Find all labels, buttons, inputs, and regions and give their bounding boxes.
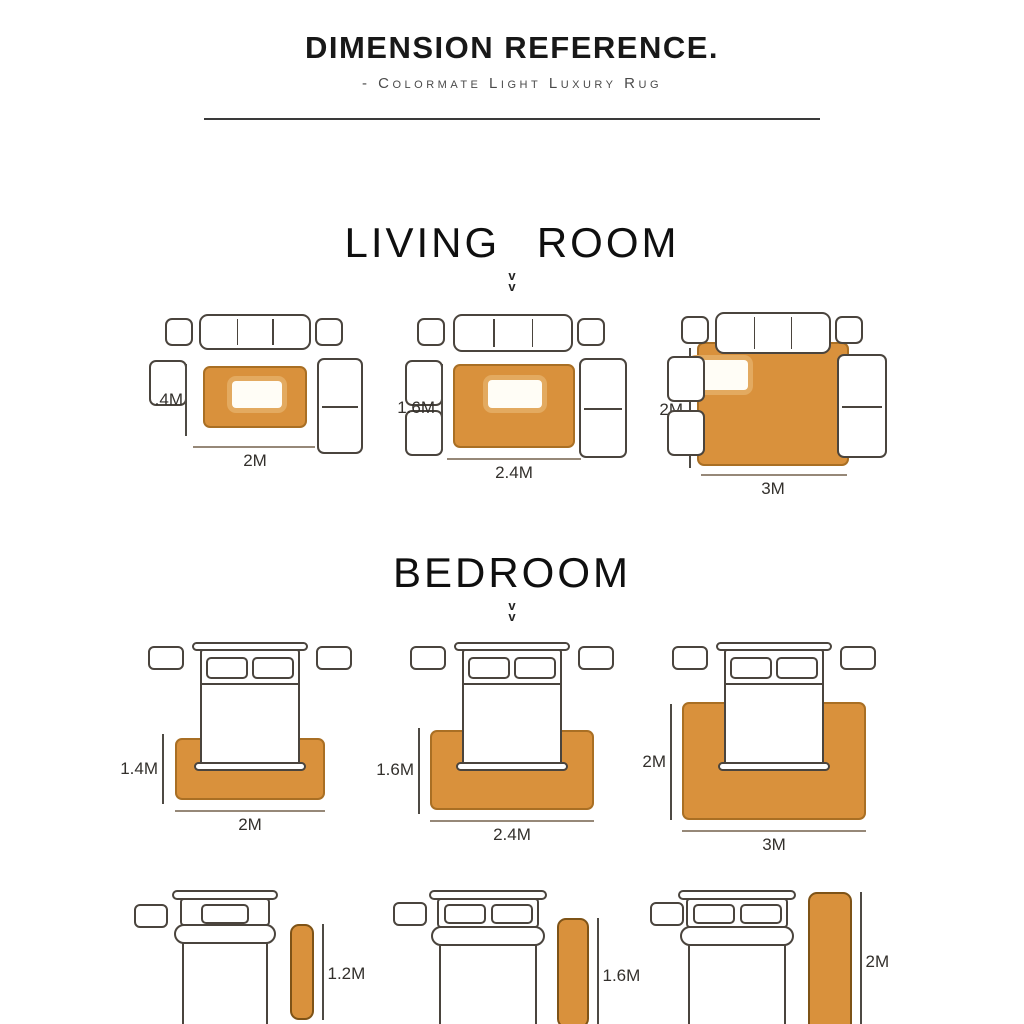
living-diagram-2m: .4M 2M: [129, 308, 379, 500]
side-table-icon: [315, 318, 343, 346]
height-dimension-line: [162, 734, 164, 804]
sofa-seat-divider: [237, 319, 239, 345]
header: DIMENSION REFERENCE. - Colormate Light L…: [0, 0, 1024, 120]
living-diagram-3m: 2M 3M: [645, 308, 895, 500]
pillow-icon: [776, 657, 818, 679]
width-dimension-label: 3M: [697, 479, 849, 499]
bed-icon: [182, 942, 268, 1024]
living-room-diagrams: .4M 2M 1.6M 2.4M: [0, 308, 1024, 500]
sofa-icon: [715, 312, 831, 354]
runner-rug-icon: [290, 924, 314, 1020]
loveseat-icon: [317, 358, 363, 454]
chevron-down-icon: v: [0, 283, 1024, 294]
armchair-icon: [667, 410, 705, 456]
side-table-icon: [417, 318, 445, 346]
height-dimension-line: [418, 728, 420, 814]
coffee-table-icon: [488, 380, 542, 408]
blanket-edge: [463, 683, 561, 685]
height-dimension-line: [860, 892, 862, 1024]
bed-head-icon: [437, 898, 539, 928]
pillow-icon: [444, 904, 486, 924]
width-dimension-label: 2M: [203, 451, 307, 471]
pillow-icon: [252, 657, 294, 679]
bolster-icon: [680, 926, 794, 946]
side-table-icon: [835, 316, 863, 344]
bed-foot-icon: [718, 762, 830, 771]
nightstand-icon: [134, 904, 168, 928]
sofa-seat-divider: [754, 317, 756, 349]
nightstand-icon: [672, 646, 708, 670]
bed-foot-icon: [194, 762, 306, 771]
sofa-seat-divider: [493, 319, 495, 347]
blanket-edge: [725, 683, 823, 685]
nightstand-icon: [316, 646, 352, 670]
living-diagram-2-4m: 1.6M 2.4M: [387, 308, 637, 500]
header-divider: [204, 118, 820, 120]
bed-icon: [462, 649, 562, 767]
bed-icon: [439, 944, 537, 1024]
bedroom-diagram-2m: 1.4M 2M: [130, 642, 370, 860]
side-table-icon: [681, 316, 709, 344]
page-subtitle: - Colormate Light Luxury Rug: [0, 75, 1024, 92]
bedroom-diagrams: 1.4M 2M 1.6M 2.4M: [0, 642, 1024, 860]
runner-diagram-0-6m: 1.6M 0.6M: [385, 888, 640, 1024]
sofa-icon: [453, 314, 573, 352]
width-dimension-label: 2.4M: [430, 825, 594, 845]
pillow-icon: [206, 657, 248, 679]
sofa-seat-divider: [791, 317, 793, 349]
bolster-icon: [431, 926, 545, 946]
living-room-heading: LIVING ROOM: [0, 222, 1024, 264]
bolster-icon: [174, 924, 276, 944]
loveseat-icon: [837, 354, 887, 458]
runner-diagram-0-4m: 1.2M 0.4M: [122, 888, 377, 1024]
bedroom-heading: BEDROOM: [0, 552, 1024, 594]
runner-rug-icon: [557, 918, 589, 1024]
height-dimension-label: .4M: [137, 390, 183, 410]
loveseat-seat-divider: [584, 408, 622, 410]
width-dimension-label: 2M: [175, 815, 325, 835]
nightstand-icon: [650, 902, 684, 926]
bedroom-diagram-3m: 2M 3M: [654, 642, 894, 860]
rug-icon: [203, 366, 307, 428]
height-dimension-line: [670, 704, 672, 820]
chevron-down-icon: v: [0, 613, 1024, 624]
sofa-seat-divider: [272, 319, 274, 345]
sofa-seat-divider: [532, 319, 534, 347]
runner-diagram-0-8m: 2M 0.8M: [648, 888, 903, 1024]
chevron-down-icon: v v: [0, 272, 1024, 294]
sofa-icon: [199, 314, 311, 350]
bed-head-icon: [180, 898, 270, 926]
height-dimension-label: 1.4M: [116, 759, 158, 779]
bedside-runner-diagrams: 1.2M 0.4M 1.6M 0.6M: [0, 888, 1024, 1024]
nightstand-icon: [410, 646, 446, 670]
width-dimension-line: [193, 446, 315, 448]
pillow-icon: [491, 904, 533, 924]
runner-rug-icon: [808, 892, 852, 1024]
height-dimension-label: 2M: [866, 952, 890, 972]
height-dimension-line: [322, 924, 324, 1020]
bed-foot-icon: [456, 762, 568, 771]
height-dimension-line: [441, 364, 443, 450]
side-table-icon: [165, 318, 193, 346]
pillow-icon: [693, 904, 735, 924]
width-dimension-line: [175, 810, 325, 812]
nightstand-icon: [148, 646, 184, 670]
rug-icon: [453, 364, 575, 448]
width-dimension-line: [430, 820, 594, 822]
blanket-edge: [201, 683, 299, 685]
height-dimension-label: 1.2M: [328, 964, 366, 984]
height-dimension-line: [597, 918, 599, 1024]
height-dimension-label: 2M: [632, 752, 666, 772]
loveseat-icon: [579, 358, 627, 458]
width-dimension-line: [447, 458, 581, 460]
bed-icon: [200, 649, 300, 767]
armchair-icon: [667, 356, 705, 402]
coffee-table-icon: [232, 381, 282, 408]
loveseat-seat-divider: [322, 406, 358, 408]
height-dimension-label: 1.6M: [372, 760, 414, 780]
pillow-icon: [201, 904, 249, 924]
page-title: DIMENSION REFERENCE.: [0, 30, 1024, 66]
height-dimension-line: [185, 364, 187, 436]
side-table-icon: [577, 318, 605, 346]
width-dimension-label: 2.4M: [453, 463, 575, 483]
pillow-icon: [514, 657, 556, 679]
width-dimension-label: 3M: [682, 835, 866, 855]
nightstand-icon: [393, 902, 427, 926]
dimension-reference-page: DIMENSION REFERENCE. - Colormate Light L…: [0, 0, 1024, 1024]
bed-icon: [688, 944, 786, 1024]
height-dimension-label: 1.6M: [603, 966, 641, 986]
pillow-icon: [740, 904, 782, 924]
pillow-icon: [730, 657, 772, 679]
pillow-icon: [468, 657, 510, 679]
width-dimension-line: [701, 474, 847, 476]
height-dimension-label: 1.6M: [387, 398, 435, 418]
chevron-down-icon: v v: [0, 602, 1024, 624]
bedroom-diagram-2-4m: 1.6M 2.4M: [392, 642, 632, 860]
nightstand-icon: [840, 646, 876, 670]
width-dimension-line: [682, 830, 866, 832]
loveseat-seat-divider: [842, 406, 882, 408]
bed-icon: [724, 649, 824, 767]
nightstand-icon: [578, 646, 614, 670]
bed-head-icon: [686, 898, 788, 928]
